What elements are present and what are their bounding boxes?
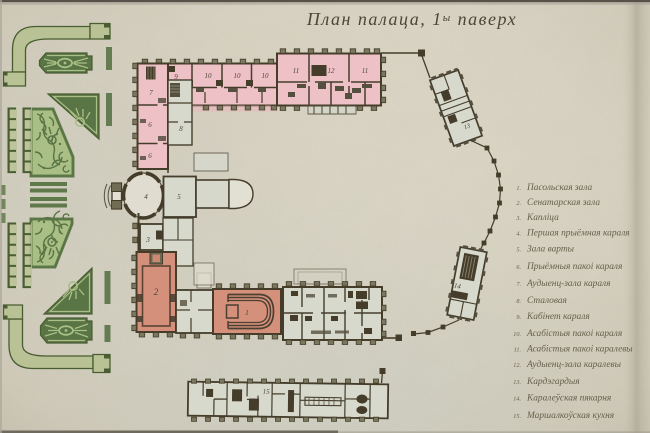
svg-text:10: 10 — [262, 72, 270, 80]
svg-text:Аудыенц-зала каралевы: Аудыенц-зала каралевы — [526, 359, 622, 370]
svg-text:3: 3 — [145, 235, 150, 244]
svg-text:15.: 15. — [513, 413, 521, 420]
svg-text:Аудыенц-зала караля: Аудыенц-зала караля — [526, 278, 611, 289]
svg-text:Асабістыя пакоі караля: Асабістыя пакоі караля — [526, 328, 622, 339]
svg-text:9.: 9. — [516, 314, 521, 321]
svg-text:6: 6 — [148, 152, 152, 160]
svg-text:Кабінет караля: Кабінет караля — [526, 311, 590, 322]
svg-text:8.: 8. — [516, 298, 521, 305]
svg-text:2: 2 — [154, 287, 159, 297]
svg-text:8: 8 — [179, 125, 183, 133]
svg-text:Першая прыёмная караля: Першая прыёмная караля — [526, 229, 630, 239]
svg-text:1: 1 — [245, 308, 249, 317]
svg-text:14.: 14. — [513, 396, 521, 403]
svg-text:11.: 11. — [514, 347, 521, 354]
svg-text:Зала варты: Зала варты — [527, 245, 575, 255]
svg-text:13.: 13. — [513, 379, 521, 386]
svg-text:2.: 2. — [516, 200, 521, 207]
svg-text:1.: 1. — [516, 185, 521, 192]
svg-text:5: 5 — [177, 193, 181, 201]
svg-text:Капліца: Капліца — [526, 213, 559, 223]
svg-text:12.: 12. — [513, 362, 521, 369]
svg-text:11: 11 — [362, 67, 368, 75]
svg-text:Каралеўская пякарня: Каралеўская пякарня — [526, 393, 611, 404]
svg-text:7.: 7. — [516, 281, 521, 288]
svg-text:3.: 3. — [515, 215, 521, 222]
svg-text:Прыёмныя пакоі караля: Прыёмныя пакоі караля — [526, 262, 622, 272]
svg-text:Асабістыя пакоі каралевы: Асабістыя пакоі каралевы — [526, 344, 633, 355]
svg-text:Маршалкоўская кухня: Маршалкоўская кухня — [526, 410, 614, 421]
svg-text:Кардэгардыя: Кардэгардыя — [526, 376, 580, 387]
svg-text:4: 4 — [144, 193, 148, 201]
svg-text:12: 12 — [328, 67, 336, 75]
svg-text:10: 10 — [205, 72, 213, 80]
svg-text:План палаца, 1ы паверх: План палаца, 1ы паверх — [306, 9, 517, 29]
svg-text:6.: 6. — [516, 264, 521, 271]
svg-text:15: 15 — [263, 388, 271, 396]
svg-text:Сенатарская зала: Сенатарская зала — [527, 198, 600, 208]
svg-text:5.: 5. — [516, 247, 521, 254]
svg-text:4.: 4. — [516, 231, 521, 238]
svg-text:10.: 10. — [513, 331, 521, 338]
svg-text:10: 10 — [234, 72, 242, 80]
svg-text:Пасольская зала: Пасольская зала — [526, 183, 592, 193]
svg-text:11: 11 — [293, 67, 299, 75]
svg-text:6: 6 — [148, 121, 152, 129]
svg-text:Сталовая: Сталовая — [527, 296, 567, 306]
svg-text:7: 7 — [149, 89, 153, 97]
